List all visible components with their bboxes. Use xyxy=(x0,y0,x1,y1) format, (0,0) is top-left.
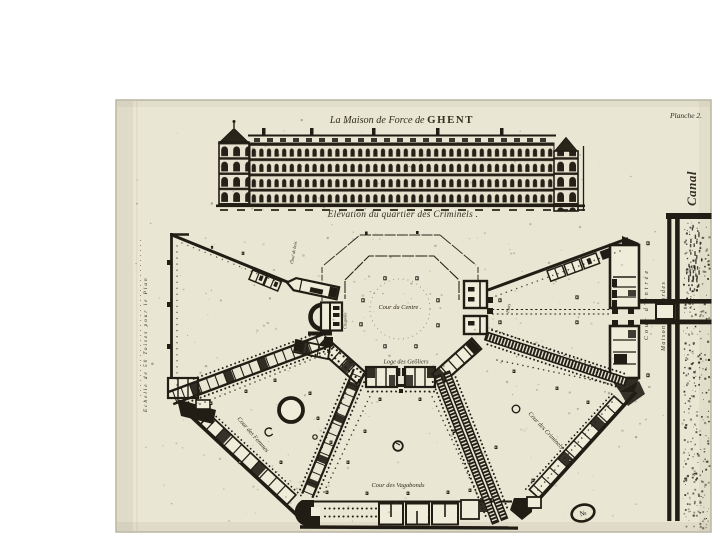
svg-text:La Maison de Force de GHENT: La Maison de Force de GHENT xyxy=(329,114,474,126)
svg-text:Cour des Vagabonds: Cour des Vagabonds xyxy=(372,482,425,489)
svg-text:Loge des Geôliers: Loge des Geôliers xyxy=(382,359,429,366)
svg-text:Elévation du quartier des Crim: Elévation du quartier des Criminels . xyxy=(327,210,479,220)
svg-text:Chapelle: Chapelle xyxy=(343,312,348,329)
svg-text:Echelle de 50 Toises pour le P: Echelle de 50 Toises pour le Plan xyxy=(143,276,149,413)
svg-text:Canal: Canal xyxy=(684,171,699,206)
svg-text:Planche 2.: Planche 2. xyxy=(669,111,702,120)
svg-text:Cour du Centre .: Cour du Centre . xyxy=(378,304,421,311)
svg-text:Cour d'entrée: Cour d'entrée xyxy=(644,268,650,340)
